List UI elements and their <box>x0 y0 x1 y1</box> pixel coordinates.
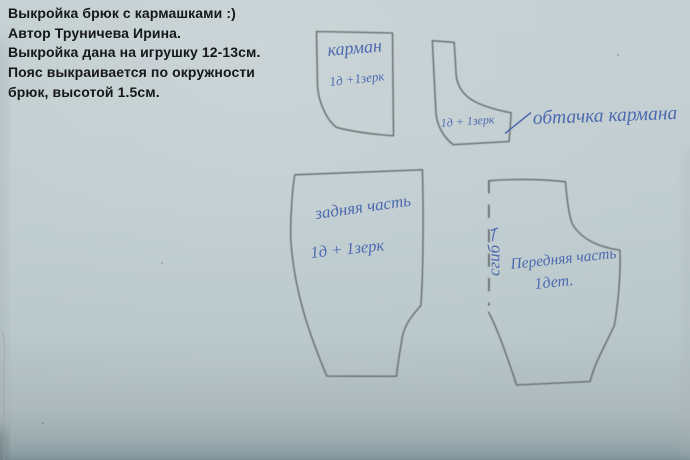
svg-text:сгиб: сгиб <box>485 244 504 276</box>
